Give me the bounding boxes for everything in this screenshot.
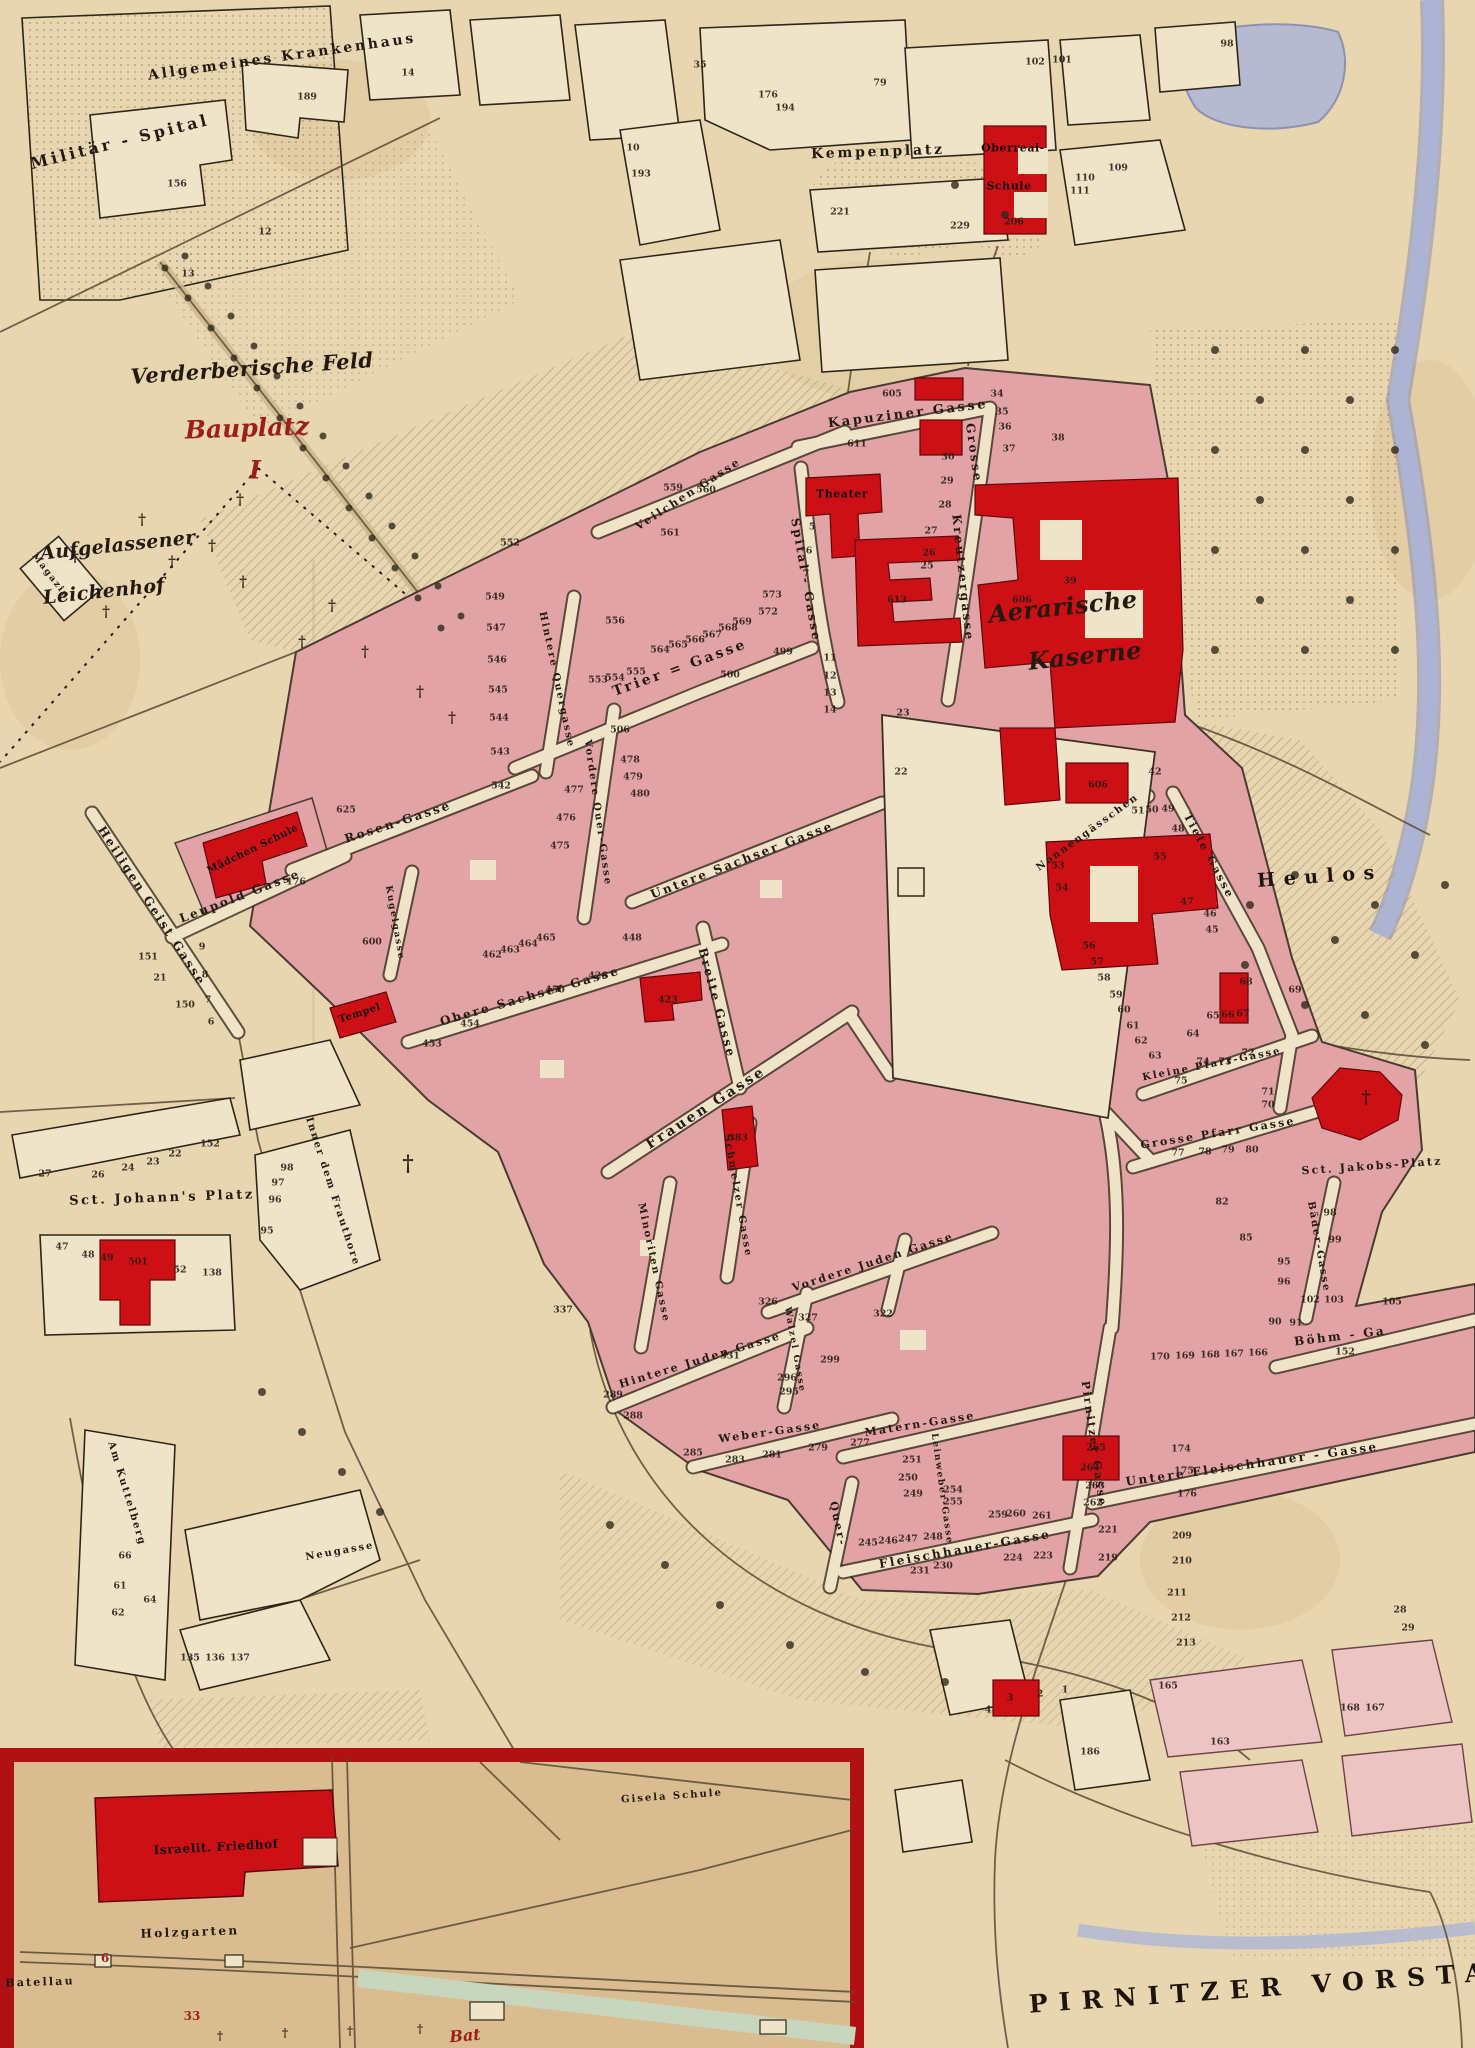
house-number: 163	[1210, 1737, 1230, 1747]
house-number: 38	[1051, 433, 1064, 443]
house-number: 69	[1288, 985, 1301, 995]
house-number: 547	[486, 623, 506, 633]
house-number: 230	[933, 1561, 953, 1571]
house-number: 56	[1082, 941, 1095, 951]
house-number: 13	[823, 688, 836, 698]
house-number: 223	[1033, 1551, 1053, 1561]
house-number: 229	[950, 221, 970, 231]
label-holzgarten: Holzgarten	[140, 1924, 239, 1939]
label-oberreal: Oberreal-	[981, 143, 1045, 154]
house-number: 1	[1062, 1685, 1069, 1695]
house-number: 137	[230, 1653, 250, 1663]
house-number: 169	[1175, 1351, 1195, 1361]
map-labels-layer: Allgemeines KrankenhausMilitär - SpitalK…	[0, 0, 1475, 2048]
house-number: 45	[1205, 925, 1218, 935]
house-number: 46	[1203, 909, 1216, 919]
house-number: 2	[1037, 1689, 1044, 1699]
label-verderberische-feld: Verderberische Feld	[130, 349, 374, 387]
cross-symbol: †	[298, 635, 306, 650]
house-number: 453	[422, 1039, 442, 1049]
cross-symbol: †	[71, 550, 79, 565]
house-number: 72	[1241, 1048, 1254, 1058]
house-number: 246	[878, 1536, 898, 1546]
house-number: 28	[1393, 1605, 1406, 1615]
house-number: 560	[696, 485, 716, 495]
house-number: 167	[1365, 1703, 1385, 1713]
house-number: 186	[1080, 1747, 1100, 1757]
house-number: 22	[894, 767, 907, 777]
house-number: 61	[113, 1581, 126, 1591]
house-number: 279	[808, 1443, 828, 1453]
house-number: 109	[1108, 163, 1128, 173]
house-number: 552	[500, 538, 520, 548]
house-number: 288	[623, 1411, 643, 1421]
house-number: 283	[725, 1455, 745, 1465]
cross-symbol: †	[168, 555, 176, 570]
house-number: 206	[1004, 217, 1024, 227]
house-number: 209	[1172, 1531, 1192, 1541]
house-number: 176	[286, 877, 306, 887]
house-number: 98	[280, 1163, 293, 1173]
house-number: 426	[588, 971, 608, 981]
house-number: 23	[146, 1157, 159, 1167]
house-number: 573	[762, 590, 782, 600]
house-number: 27	[924, 526, 937, 536]
label-schmelzer-gasse: Schmelzer Gasse	[721, 1134, 753, 1259]
house-number: 327	[798, 1313, 818, 1323]
house-number: 543	[490, 747, 510, 757]
label-böhm-ga: Böhm - Ga	[1293, 1324, 1386, 1347]
house-number: 572	[758, 607, 778, 617]
house-number: 36	[998, 422, 1011, 432]
cross-symbol: †	[347, 2025, 353, 2037]
label-breite-gasse: Breite Gasse	[696, 946, 737, 1059]
house-number: 150	[175, 1000, 195, 1010]
house-number: 73	[1218, 1057, 1231, 1067]
label-matern-gasse: Matern-Gasse	[864, 1410, 976, 1438]
house-number: 542	[491, 781, 511, 791]
house-number: 9	[199, 942, 206, 952]
house-number: 39	[1063, 576, 1076, 586]
house-number: 29	[1401, 1623, 1414, 1633]
house-number: 152	[200, 1139, 220, 1149]
label-israelit-friedhof: Israelit. Friedhof	[153, 1838, 278, 1857]
house-number: 21	[153, 973, 166, 983]
house-number: 544	[489, 713, 509, 723]
house-number: 14	[401, 68, 414, 78]
house-number: 82	[1215, 1197, 1228, 1207]
label-hintere-quergasse: Hintere Quergasse	[537, 611, 576, 749]
house-number: 51	[1131, 806, 1144, 816]
house-number: 168	[1340, 1703, 1360, 1713]
house-number: 8	[202, 970, 209, 980]
cross-symbol: †	[102, 605, 110, 620]
label-am-kuttelberg: Am Kuttelberg	[105, 1441, 146, 1548]
house-number: 28	[938, 500, 951, 510]
house-number: 103	[1324, 1295, 1344, 1305]
cross-symbol: †	[138, 513, 146, 528]
house-number: 156	[167, 179, 187, 189]
label-theater: Theater	[816, 489, 868, 500]
house-number: 296	[777, 1373, 797, 1383]
house-number: 52	[173, 1265, 186, 1275]
cross-symbol: †	[361, 645, 369, 660]
house-number: 254	[943, 1485, 963, 1495]
house-number: 561	[660, 528, 680, 538]
label-vordere-quer-gasse: Vordere Quer-Gasse	[582, 739, 612, 887]
house-number: 211	[1167, 1588, 1187, 1598]
house-number: 24	[121, 1163, 134, 1173]
house-number: 259	[988, 1510, 1008, 1520]
house-number: 454	[460, 1019, 480, 1029]
house-number: 501	[128, 1257, 148, 1267]
house-number: 64	[143, 1595, 156, 1605]
cross-symbol: †	[217, 2030, 223, 2042]
house-number: 102	[1300, 1295, 1320, 1305]
house-number: 285	[683, 1448, 703, 1458]
house-number: 10	[626, 143, 639, 153]
house-number: 613	[887, 595, 907, 605]
label-minoriten-gasse: Minoriten Gasse	[635, 1202, 670, 1324]
house-number: 478	[620, 755, 640, 765]
house-number: 219	[1098, 1553, 1118, 1563]
house-number: 277	[850, 1438, 870, 1448]
house-number: 151	[138, 952, 158, 962]
house-number: 625	[336, 805, 356, 815]
house-number: 221	[1098, 1525, 1118, 1535]
house-number: 47	[55, 1242, 68, 1252]
house-number: 26	[922, 548, 935, 558]
label-tiefe-gasse: Tiefe Gasse	[1182, 811, 1236, 900]
house-number: 448	[622, 933, 642, 943]
house-number: 65	[1206, 1011, 1219, 1021]
house-number: 60	[1117, 1005, 1130, 1015]
house-number: 58	[1097, 973, 1110, 983]
label-kleine-pfarr-gasse: Kleine Pfarr-Gasse	[1142, 1047, 1283, 1084]
house-number: 50	[1145, 805, 1158, 815]
label-kaserne: Kaserne	[1027, 638, 1143, 674]
house-number: 6	[208, 1017, 215, 1027]
house-number: 322	[873, 1309, 893, 1319]
house-number: 91	[1289, 1318, 1302, 1328]
cross-symbol: †	[416, 685, 424, 700]
house-number: 99	[1328, 1235, 1341, 1245]
house-number: 210	[1172, 1556, 1192, 1566]
house-number: 477	[564, 785, 584, 795]
label-bauplatz: Bauplatz	[184, 413, 309, 442]
house-number: 35	[693, 60, 706, 70]
house-number: 611	[847, 439, 867, 449]
house-number: 3	[1007, 1693, 1014, 1703]
house-number: 48	[81, 1250, 94, 1260]
house-number: 224	[1003, 1553, 1023, 1563]
house-number: 506	[610, 725, 630, 735]
house-number: 77	[1171, 1148, 1184, 1158]
cross-symbol: †	[328, 599, 336, 614]
label-kempenplatz: Kempenplatz	[811, 143, 945, 162]
house-number: 176	[758, 90, 778, 100]
house-number: 111	[1070, 186, 1090, 196]
label-grosse: Grosse	[964, 422, 984, 483]
house-number: 47	[1180, 897, 1193, 907]
label-rosen-gasse: Rosen-Gasse	[343, 799, 453, 845]
cross-symbol: †	[1361, 1089, 1370, 1107]
house-number: 96	[1277, 1277, 1290, 1287]
label-weber-gasse: Weber-Gasse	[718, 1419, 822, 1444]
house-number: 569	[732, 617, 752, 627]
house-number: 175	[1174, 1466, 1194, 1476]
house-number: 102	[1025, 57, 1045, 67]
house-number: 605	[882, 389, 902, 399]
house-number: 54	[1055, 883, 1068, 893]
house-number: 138	[202, 1268, 222, 1278]
label-gisela-schule: Gisela Schule	[621, 1788, 724, 1805]
house-number: 14	[823, 705, 836, 715]
house-number: 67	[1236, 1009, 1249, 1019]
house-number: 64	[1186, 1029, 1199, 1039]
house-number: 265	[1086, 1443, 1106, 1453]
label-aerarische: Aerarische	[987, 587, 1138, 626]
label-allgemeines-krankenhaus: Allgemeines Krankenhaus	[147, 31, 417, 82]
house-number: 245	[858, 1538, 878, 1548]
house-number: 48	[1171, 824, 1184, 834]
label-untere-fleischhauer-gasse: Untere Fleischhauer - Gasse	[1125, 1440, 1379, 1487]
house-number: 549	[485, 592, 505, 602]
house-number: 62	[1134, 1036, 1147, 1046]
house-number: 475	[550, 841, 570, 851]
label-vordere-juden-gasse: Vordere Juden Gasse	[791, 1231, 956, 1294]
label-mädchen-schule: Mädchen Schule	[206, 824, 300, 877]
house-number-red: 33	[184, 2010, 201, 2022]
label-pirnitzer-vorsta: PIRNITZER VORSTA	[1028, 1959, 1475, 2017]
cross-symbol: †	[417, 2023, 423, 2035]
house-number: 7	[803, 569, 810, 579]
cross-symbol: †	[402, 1153, 414, 1175]
house-number: 66	[1221, 1010, 1234, 1020]
house-number: 546	[487, 655, 507, 665]
house-number: 29	[940, 476, 953, 486]
house-number: 34	[990, 389, 1003, 399]
house-number: 170	[1150, 1352, 1170, 1362]
house-number: 4	[985, 1705, 992, 1715]
house-number: 299	[820, 1355, 840, 1365]
house-number: 221	[830, 207, 850, 217]
house-number: 479	[623, 772, 643, 782]
house-number: 383	[728, 1133, 748, 1143]
house-number: 25	[920, 561, 933, 571]
label-batellau: Batellau	[5, 1975, 75, 1988]
label-leupold-gasse: Leupold Gasse	[178, 867, 302, 924]
house-number: 79	[873, 78, 886, 88]
house-number: 261	[1032, 1511, 1052, 1521]
house-number: 167	[1224, 1349, 1244, 1359]
house-number: 7	[205, 995, 212, 1005]
label-bat: Bat	[449, 2027, 482, 2046]
label-inner-dem-frauthore: Inner dem Frauthore	[303, 1116, 361, 1267]
house-number: 26	[91, 1170, 104, 1180]
house-number: 90	[1268, 1317, 1281, 1327]
label-spital-gasse: Spital - Gasse	[789, 517, 823, 643]
house-number: 465	[536, 933, 556, 943]
house-number: 423	[658, 995, 678, 1005]
house-number: 194	[775, 103, 795, 113]
cross-symbol: †	[239, 575, 247, 590]
house-number: 606	[1088, 780, 1108, 790]
house-number: 6	[806, 546, 813, 556]
label-kugelgasse: Kugelgasse	[383, 885, 405, 961]
house-number: 57	[1090, 957, 1103, 967]
house-number: 95	[1277, 1257, 1290, 1267]
house-number: 42	[1148, 767, 1161, 777]
house-number-red: 6	[101, 1952, 109, 1964]
house-number: 462	[482, 950, 502, 960]
house-number: 80	[1245, 1145, 1258, 1155]
house-number: 248	[923, 1532, 943, 1542]
label-hintere-juden-gasse: Hintere Juden Gasse	[618, 1330, 783, 1390]
house-number: 55	[1153, 852, 1166, 862]
house-number: 260	[1006, 1509, 1026, 1519]
house-number: 12	[823, 671, 836, 681]
label-quer: Quer-	[828, 1500, 848, 1547]
house-number: 66	[118, 1551, 131, 1561]
house-number: 5	[809, 522, 816, 532]
house-number: 35	[995, 407, 1008, 417]
house-number: 559	[663, 483, 683, 493]
label-heulos: Heulos	[1257, 863, 1384, 891]
house-number: 476	[556, 813, 576, 823]
house-number: 263	[1085, 1481, 1105, 1491]
label-veilchen-gasse: Veilchen Gasse	[633, 456, 742, 532]
house-number: 212	[1171, 1613, 1191, 1623]
house-number: 166	[1248, 1348, 1268, 1358]
house-number: 27	[38, 1169, 51, 1179]
label-neugasse: Neugasse	[305, 1541, 376, 1563]
house-number: 101	[1052, 55, 1072, 65]
house-number: 450	[545, 985, 565, 995]
house-number: 499	[773, 647, 793, 657]
house-number: 251	[902, 1455, 922, 1465]
label-schule: Schule	[986, 181, 1031, 192]
label-grosse-pfarr-gasse: Grosse Pfarr Gasse	[1140, 1115, 1297, 1150]
house-number: 75	[1174, 1076, 1187, 1086]
house-number: 110	[1075, 173, 1095, 183]
house-number: 600	[362, 937, 382, 947]
house-number: 606	[1012, 595, 1032, 605]
house-number: 70	[1261, 1100, 1274, 1110]
house-number: 23	[896, 708, 909, 718]
house-number: 545	[488, 685, 508, 695]
label-frauen-gasse: Frauen Gasse	[644, 1064, 769, 1152]
cross-symbol: †	[282, 2027, 288, 2039]
historic-city-map: Allgemeines KrankenhausMilitär - SpitalK…	[0, 0, 1475, 2048]
house-number: 480	[630, 789, 650, 799]
house-number: 331	[720, 1351, 740, 1361]
house-number: 68	[1239, 977, 1252, 987]
house-number: 255	[943, 1497, 963, 1507]
house-number: 174	[1171, 1444, 1191, 1454]
house-number: 63	[1148, 1051, 1161, 1061]
house-number: 12	[258, 227, 271, 237]
label-tempel: Tempel	[338, 1003, 382, 1026]
house-number: 247	[898, 1534, 918, 1544]
house-number: 564	[650, 645, 670, 655]
cross-symbol: †	[208, 539, 216, 554]
house-number: 176	[1177, 1489, 1197, 1499]
house-number: 281	[762, 1450, 782, 1460]
house-number: 79	[1221, 1145, 1234, 1155]
house-number: 49	[100, 1253, 113, 1263]
house-number: 49	[1161, 804, 1174, 814]
house-number: 231	[910, 1566, 930, 1576]
house-number: 463	[500, 945, 520, 955]
house-number: 136	[205, 1653, 225, 1663]
house-number: 105	[1382, 1297, 1402, 1307]
house-number: 71	[1261, 1087, 1274, 1097]
house-number: 337	[553, 1305, 573, 1315]
label-sct-johann-s-platz: Sct. Johann's Platz	[69, 1188, 255, 1207]
house-number: 165	[1158, 1681, 1178, 1691]
house-number: 213	[1176, 1638, 1196, 1648]
house-number: 59	[1109, 990, 1122, 1000]
cross-symbol: †	[236, 493, 244, 508]
house-number: 98	[1323, 1208, 1336, 1218]
house-number: 85	[1239, 1233, 1252, 1243]
house-number: 61	[1126, 1021, 1139, 1031]
house-number: 152	[1335, 1347, 1355, 1357]
house-number: 189	[297, 92, 317, 102]
label-sct-jakobs-platz: Sct. Jakobs-Platz	[1301, 1156, 1443, 1177]
label-kreutzergasse: Kreutzergasse	[950, 514, 975, 643]
house-number: 135	[180, 1653, 200, 1663]
house-number: 74	[1196, 1057, 1209, 1067]
house-number: 97	[271, 1178, 284, 1188]
house-number: 62	[111, 1608, 124, 1618]
house-number: 53	[1051, 861, 1064, 871]
house-number: 326	[758, 1297, 778, 1307]
house-number: 289	[603, 1390, 623, 1400]
house-number: 262	[1083, 1498, 1103, 1508]
label-untere-sachser-gasse: Untere Sachser Gasse	[649, 819, 835, 900]
house-number: 37	[1002, 444, 1015, 454]
house-number: 193	[631, 169, 651, 179]
house-number: 95	[260, 1226, 273, 1236]
house-number: 13	[181, 269, 194, 279]
house-number: 464	[518, 939, 538, 949]
house-number: 168	[1200, 1350, 1220, 1360]
label-i: I	[249, 458, 261, 483]
house-number: 249	[903, 1489, 923, 1499]
house-number: 500	[720, 670, 740, 680]
house-number: 98	[1220, 39, 1233, 49]
house-number: 78	[1198, 1147, 1211, 1157]
house-number: 11	[823, 653, 836, 663]
house-number: 30	[941, 452, 954, 462]
label-militär-spital: Militär - Spital	[29, 112, 211, 172]
house-number: 22	[168, 1149, 181, 1159]
house-number: 96	[268, 1195, 281, 1205]
house-number: 556	[605, 616, 625, 626]
cross-symbol: †	[448, 711, 456, 726]
house-number: 554	[605, 673, 625, 683]
house-number: 264	[1080, 1463, 1100, 1473]
house-number: 295	[779, 1387, 799, 1397]
house-number: 555	[626, 667, 646, 677]
house-number: 250	[898, 1473, 918, 1483]
